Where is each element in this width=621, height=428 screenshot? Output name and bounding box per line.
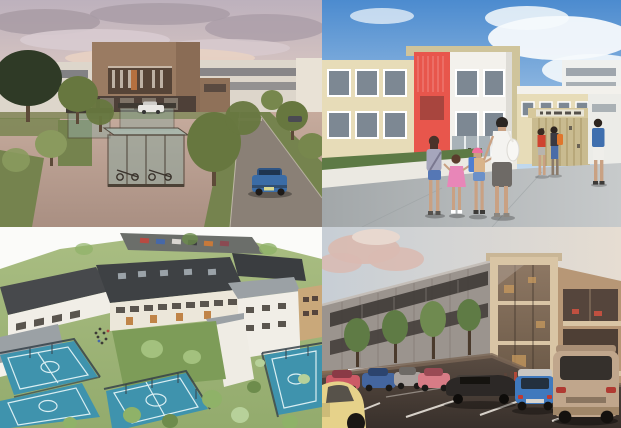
panel-street-view-dusk <box>0 0 322 227</box>
car-black-sedan <box>444 375 518 409</box>
distant-dark-car <box>288 116 302 122</box>
panel-car-park-dusk <box>322 227 621 428</box>
gate-sign <box>536 110 584 117</box>
car-blue-mini <box>512 369 556 415</box>
panel-school-entrance <box>322 0 621 227</box>
car-beige-suv <box>553 345 619 426</box>
panel-aerial-campus <box>0 227 322 428</box>
render-collage <box>0 0 621 428</box>
